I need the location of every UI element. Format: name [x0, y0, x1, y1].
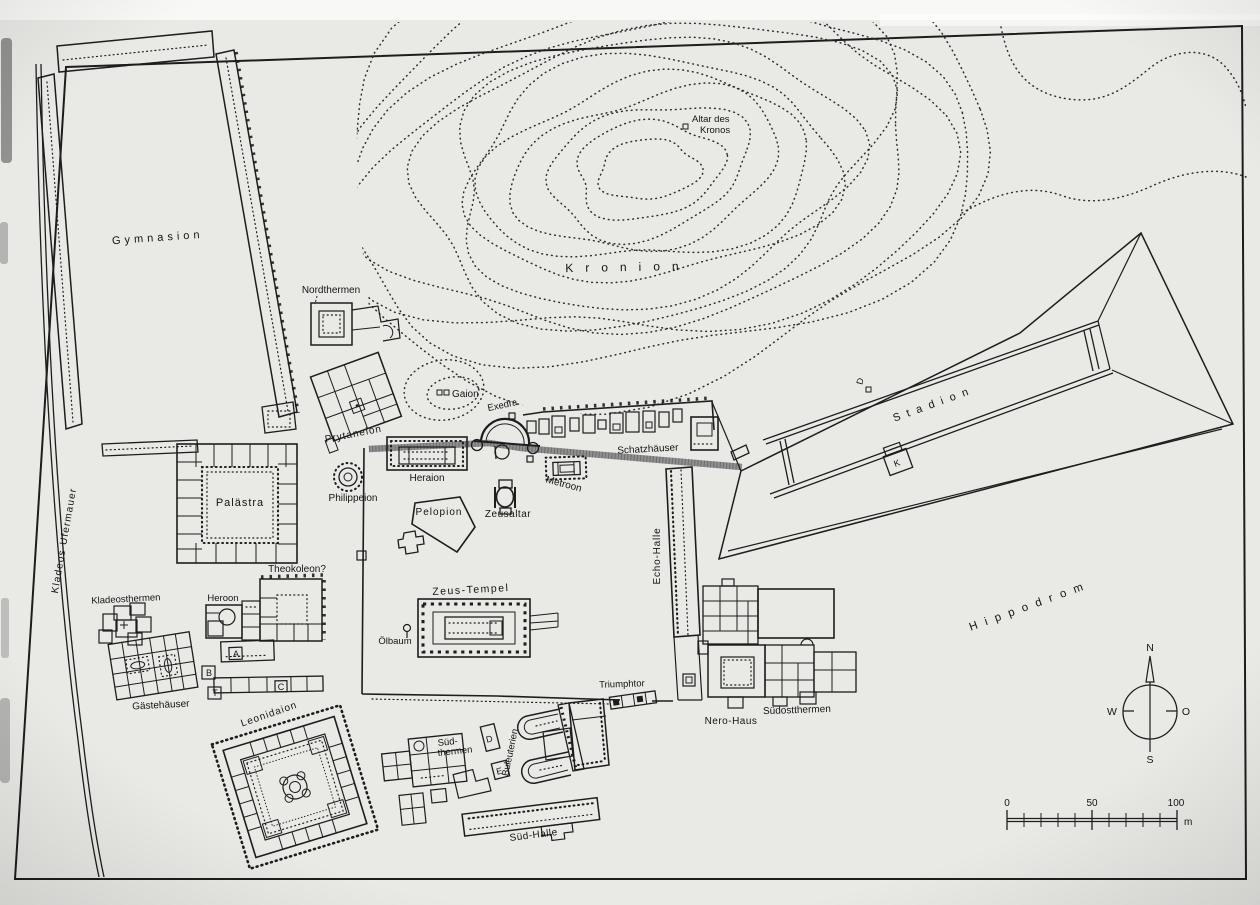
- olympia-site-plan: Kladeos-Ufermauer Gymnasion Nordthermen …: [0, 0, 1260, 905]
- site-plan-svg: Kladeos-Ufermauer Gymnasion Nordthermen …: [0, 0, 1260, 905]
- photo-artifacts: [0, 0, 1260, 905]
